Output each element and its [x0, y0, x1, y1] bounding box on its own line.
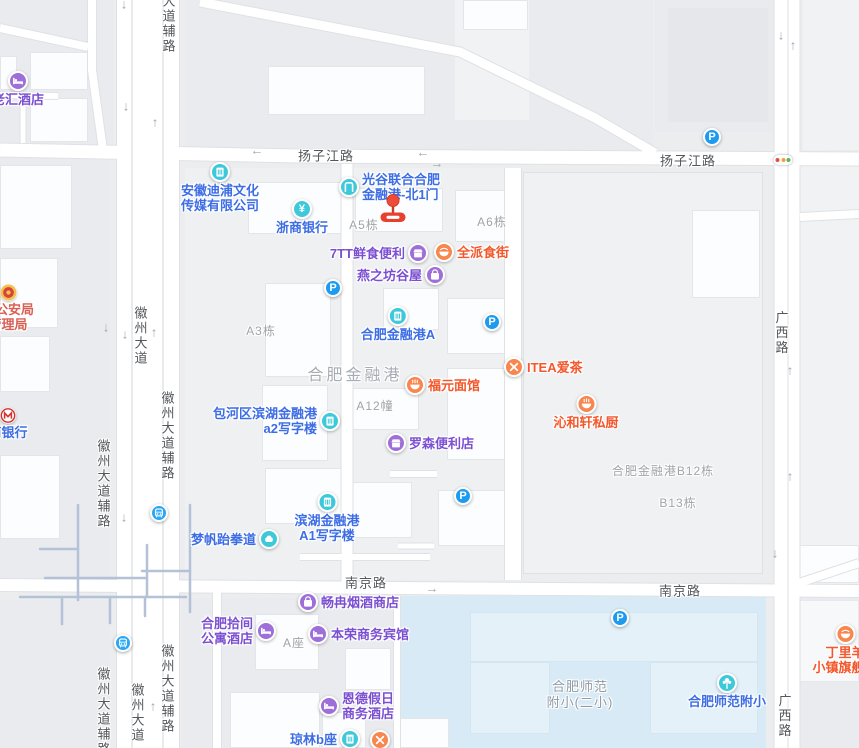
poi-zheshang-bank[interactable]: ¥浙商银行	[276, 199, 328, 235]
building-icon	[340, 729, 360, 748]
poi-label: 恩德假日商务酒店	[342, 691, 394, 721]
bowl-icon	[434, 242, 454, 262]
building-icon	[210, 162, 230, 182]
poi-label: 燕之坊谷屋	[357, 268, 422, 283]
poi-label: 合肥金融港A	[361, 327, 435, 342]
map-pois: 安徽迪浦文化传媒有限公司¥浙商银行光谷联合合肥金融港-北1门合肥金融港A包河区滨…	[0, 0, 859, 748]
poi-label: 琼林b座	[290, 732, 337, 747]
metro-station-icon[interactable]	[150, 504, 168, 522]
poi-hefei-financial-port-a[interactable]: 合肥金融港A	[361, 306, 435, 342]
parking-icon[interactable]: P	[483, 313, 501, 331]
bed-icon	[319, 696, 339, 716]
parking-icon[interactable]: P	[454, 487, 472, 505]
noodles-icon	[576, 394, 596, 414]
building-icon	[388, 306, 408, 326]
metro-station-icon[interactable]	[114, 634, 132, 652]
poi-label: 梦帆跆拳道	[191, 532, 256, 547]
gate-icon	[339, 177, 359, 197]
poi-baohe-binhu-a2-office[interactable]: 包河区滨湖金融港a2写字楼	[213, 406, 340, 436]
poi-label: 沁和轩私厨	[553, 415, 618, 430]
poi-label: 畅冉烟酒商店	[321, 595, 399, 610]
poi-quanpai-food-street[interactable]: 全派食街	[434, 242, 509, 262]
poi-label: 滨湖金融港A1写字楼	[294, 513, 359, 543]
poi-label: 丁里羊小镇旗舰店	[812, 645, 859, 675]
poi-binhu-a1-office[interactable]: 滨湖金融港A1写字楼	[294, 492, 359, 543]
poi-hefei-shijian-apartment-hotel[interactable]: 合肥拾间公寓酒店	[201, 616, 276, 646]
poi-label: 合肥拾间公寓酒店	[201, 616, 253, 646]
parking-icon[interactable]: P	[324, 279, 342, 297]
poi-label: 包河区滨湖金融港a2写字楼	[213, 406, 317, 436]
poi-label: 全派食街	[457, 245, 509, 260]
poi-merchants-bank[interactable]: 商银行	[0, 407, 28, 440]
parking-icon[interactable]: P	[611, 609, 629, 627]
bed-icon	[8, 71, 28, 91]
poi-dingliyang-town-flagship[interactable]: 丁里羊小镇旗舰店	[812, 624, 859, 675]
poi-label: 罗森便利店	[409, 436, 474, 451]
poi-label: ITEA爱茶	[527, 360, 583, 375]
poi-ende-holiday-hotel[interactable]: 恩德假日商务酒店	[319, 691, 394, 721]
poi-changran-tobacco-shop[interactable]: 畅冉烟酒商店	[298, 592, 399, 612]
poi-yanzhifang-guwu[interactable]: 燕之坊谷屋	[357, 265, 445, 285]
poi-label: 市公安局管理局	[0, 302, 34, 332]
building-icon	[320, 411, 340, 431]
building-icon	[317, 492, 337, 512]
parking-icon[interactable]: P	[703, 128, 721, 146]
bag-icon	[298, 592, 318, 612]
badge-icon	[0, 284, 16, 301]
poi-label: 老汇酒店	[0, 92, 44, 107]
store-icon	[408, 243, 428, 263]
poi-mengfan-taekwondo[interactable]: 梦帆跆拳道	[191, 529, 279, 549]
poi-itea-aicha[interactable]: ITEA爱茶	[504, 357, 583, 377]
poi-anhui-dipu-culture-media[interactable]: 安徽迪浦文化传媒有限公司	[181, 162, 259, 213]
poi-label: 7TT鲜食便利	[330, 246, 405, 261]
poi-label: 安徽迪浦文化传媒有限公司	[181, 183, 259, 213]
poi-benrong-business-hotel[interactable]: 本荣商务宾馆	[308, 624, 409, 644]
poi-label: 浙商银行	[276, 220, 328, 235]
store-icon	[386, 433, 406, 453]
noodles-icon	[405, 375, 425, 395]
poi-label: 本荣商务宾馆	[331, 627, 409, 642]
poi-restaurant-poi[interactable]	[370, 730, 390, 748]
poi-hefei-shifan-fuxiao[interactable]: 合肥师范附小	[688, 673, 766, 709]
poi-label: 商银行	[0, 425, 28, 440]
poi-qionglin-block-b[interactable]: 琼林b座	[290, 729, 360, 748]
cutlery-icon	[504, 357, 524, 377]
poi-qinhexuan-private-kitchen[interactable]: 沁和轩私厨	[553, 394, 618, 430]
bed-icon	[256, 621, 276, 641]
fist-icon	[259, 529, 279, 549]
cmb-icon	[0, 407, 16, 424]
map-canvas[interactable]: 大道辅路扬子江路扬子江路徽州大道徽州大道辅路徽州大道辅路南京路南京路广西路广西路…	[0, 0, 859, 748]
poi-public-security-bureau[interactable]: 市公安局管理局	[0, 284, 34, 332]
poi-laohui-hotel[interactable]: 老汇酒店	[0, 71, 44, 107]
yen-icon: ¥	[292, 199, 312, 219]
traffic-light-icon	[774, 155, 793, 165]
cutlery-icon	[370, 730, 390, 748]
poi-fuyuan-noodle-house[interactable]: 福元面馆	[405, 375, 480, 395]
bowl-icon	[835, 624, 855, 644]
bag-icon	[425, 265, 445, 285]
poi-label: 合肥师范附小	[688, 694, 766, 709]
poi-label: 福元面馆	[428, 378, 480, 393]
selected-gate-marker[interactable]	[380, 194, 406, 229]
tree-icon	[717, 673, 737, 693]
bed-icon	[308, 624, 328, 644]
poi-lawson-convenience[interactable]: 罗森便利店	[386, 433, 474, 453]
poi-7tt-fresh-convenience[interactable]: 7TT鲜食便利	[330, 243, 428, 263]
